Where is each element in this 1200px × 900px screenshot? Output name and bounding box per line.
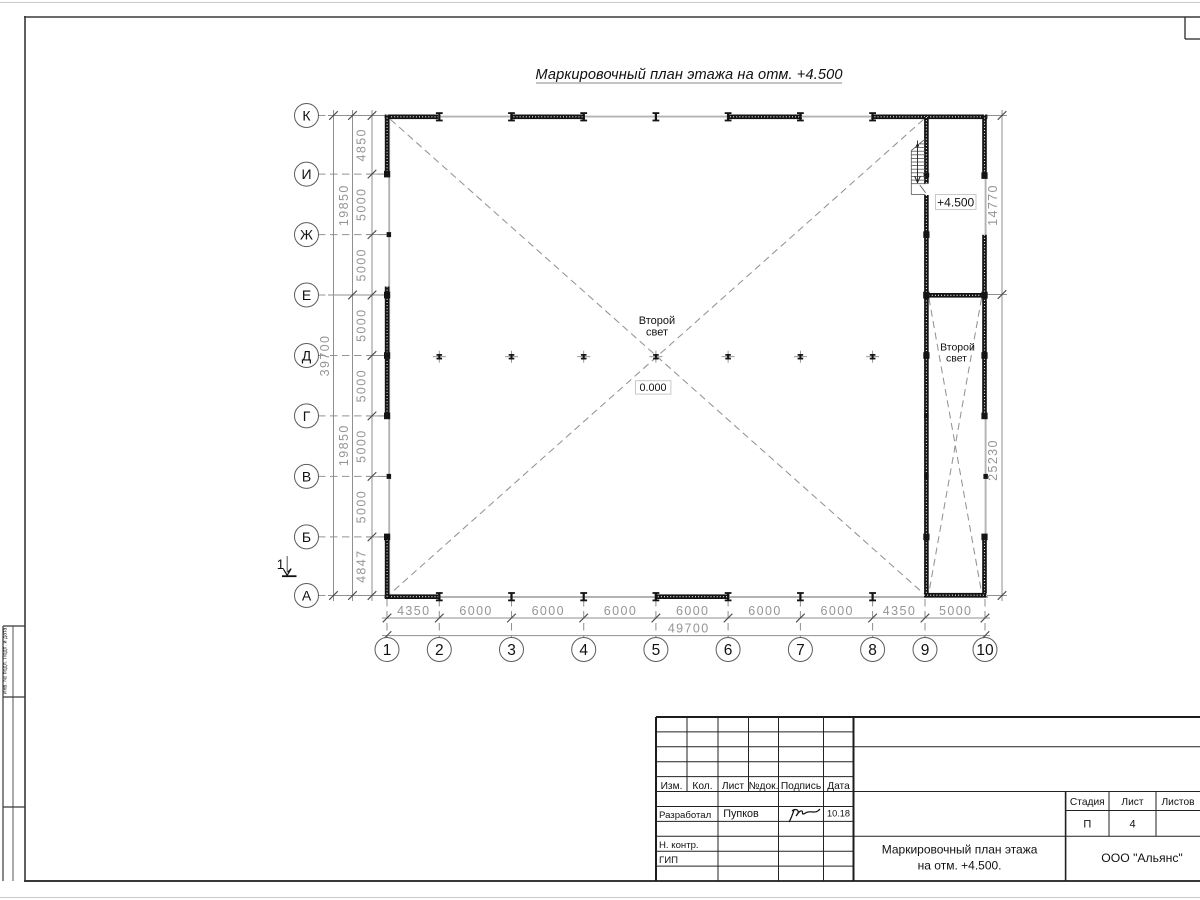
svg-text:9: 9 <box>921 642 930 659</box>
svg-text:6000: 6000 <box>604 604 637 618</box>
svg-text:1: 1 <box>383 642 392 659</box>
svg-text:ООО "Альянс": ООО "Альянс" <box>1101 851 1183 865</box>
svg-text:6000: 6000 <box>676 604 709 618</box>
svg-text:10: 10 <box>976 642 994 659</box>
svg-text:4847: 4847 <box>355 549 369 582</box>
svg-text:6000: 6000 <box>748 604 781 618</box>
svg-text:И: И <box>301 166 311 182</box>
svg-text:5000: 5000 <box>355 308 369 341</box>
svg-text:5000: 5000 <box>939 604 972 618</box>
svg-text:4: 4 <box>1129 819 1135 831</box>
svg-text:0.000: 0.000 <box>639 382 666 394</box>
svg-text:на отм. +4.500.: на отм. +4.500. <box>918 859 1002 873</box>
svg-text:Листов: Листов <box>1161 797 1194 808</box>
svg-text:6: 6 <box>724 642 733 659</box>
svg-text:свет: свет <box>646 327 668 339</box>
svg-text:Н. контр.: Н. контр. <box>659 840 699 851</box>
svg-text:8: 8 <box>868 642 877 659</box>
svg-text:П: П <box>1083 819 1091 831</box>
svg-text:2: 2 <box>435 642 444 659</box>
svg-text:5: 5 <box>652 642 661 659</box>
svg-text:№док.: №док. <box>749 781 779 792</box>
svg-text:Изм.: Изм. <box>661 781 683 792</box>
svg-text:Второй: Второй <box>639 315 675 327</box>
svg-text:25230: 25230 <box>986 439 1000 481</box>
svg-text:Лист: Лист <box>1121 797 1143 808</box>
svg-text:6000: 6000 <box>532 604 565 618</box>
svg-text:Маркировочный план этажа на от: Маркировочный план этажа на отм. +4.500 <box>535 67 842 83</box>
svg-text:+4.500: +4.500 <box>937 195 974 209</box>
svg-text:Д: Д <box>302 348 312 364</box>
svg-text:10.18: 10.18 <box>827 809 850 819</box>
svg-text:А: А <box>302 588 312 604</box>
svg-text:4: 4 <box>579 642 588 659</box>
svg-text:Стадия: Стадия <box>1070 797 1105 808</box>
svg-text:свет: свет <box>946 353 967 365</box>
svg-text:Г: Г <box>303 408 311 424</box>
svg-text:Е: Е <box>302 287 311 303</box>
svg-text:ГИП: ГИП <box>659 855 678 866</box>
svg-text:Инв. № подл. Подп. и дата: Инв. № подл. Подп. и дата <box>3 628 9 695</box>
svg-text:5000: 5000 <box>355 188 369 221</box>
svg-text:4350: 4350 <box>397 604 430 618</box>
svg-text:Лист: Лист <box>722 781 744 792</box>
svg-text:Пупков: Пупков <box>723 808 759 820</box>
svg-text:39700: 39700 <box>318 335 332 377</box>
svg-text:Б: Б <box>302 529 311 545</box>
svg-text:3: 3 <box>507 642 516 659</box>
svg-text:Разработал: Разработал <box>659 810 711 821</box>
svg-text:Дата: Дата <box>827 781 850 792</box>
svg-text:49700: 49700 <box>668 622 710 636</box>
svg-text:6000: 6000 <box>459 604 492 618</box>
svg-text:Кол.: Кол. <box>692 781 712 792</box>
svg-text:К: К <box>302 108 311 124</box>
svg-text:5000: 5000 <box>355 490 369 523</box>
svg-text:4350: 4350 <box>883 604 916 618</box>
svg-text:5000: 5000 <box>355 369 369 402</box>
svg-text:5000: 5000 <box>355 429 369 462</box>
svg-text:4850: 4850 <box>355 128 369 161</box>
svg-text:6000: 6000 <box>820 604 853 618</box>
svg-text:19850: 19850 <box>337 424 351 466</box>
svg-text:19850: 19850 <box>337 184 351 226</box>
svg-text:В: В <box>302 468 311 484</box>
svg-text:Ж: Ж <box>300 227 313 243</box>
svg-text:Маркировочный план этажа: Маркировочный план этажа <box>882 843 1038 857</box>
svg-text:Подпись: Подпись <box>781 781 821 792</box>
svg-text:5000: 5000 <box>355 248 369 281</box>
svg-text:14770: 14770 <box>986 184 1000 226</box>
svg-text:7: 7 <box>796 642 805 659</box>
